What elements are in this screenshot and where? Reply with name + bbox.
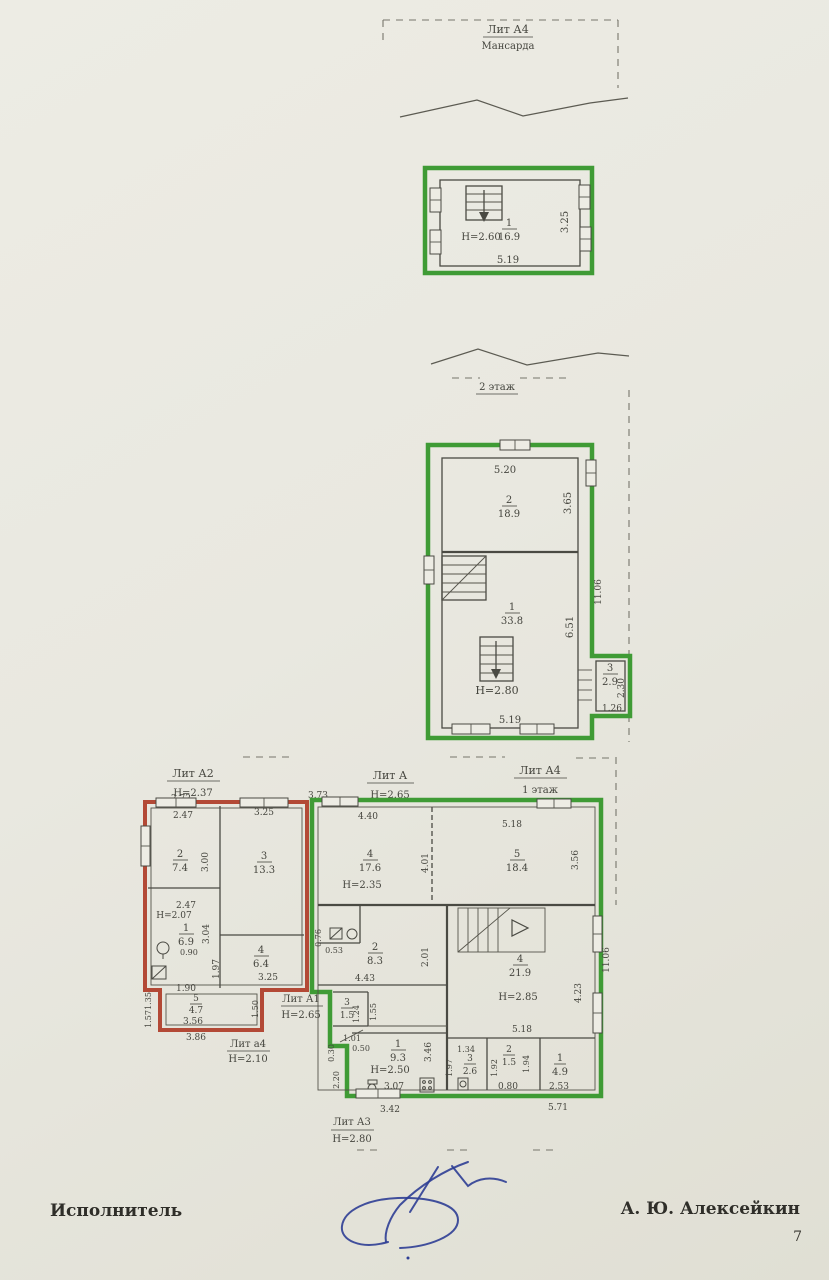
dim: 1.24 <box>352 1005 361 1023</box>
room-number: 1 <box>557 1053 563 1064</box>
room-label-2-6: 3 2.6 <box>463 1054 478 1077</box>
dim: 3.04 <box>202 924 212 944</box>
dim: 5.18 <box>502 820 522 830</box>
room-number: 4 <box>517 954 523 965</box>
page-number: 7 <box>793 1229 802 1245</box>
dim: 3.42 <box>380 1105 400 1115</box>
lit-a4-label: Лит А4 <box>519 764 560 777</box>
lit-a3-label-group: Лит А3 Н=2.80 <box>331 1117 374 1145</box>
ceiling-height: Н=2.80 <box>475 684 518 697</box>
dim: 5.18 <box>512 1025 532 1035</box>
dim: 3.07 <box>384 1082 404 1092</box>
dim: 1.90 <box>176 984 196 994</box>
lit-a4-small-label-group: Лит а4 Н=2.10 <box>227 1039 270 1065</box>
dim: 3.56 <box>183 1017 203 1027</box>
lit-a-label: Лит А <box>373 769 408 782</box>
floor-plan-drawing: Лит А4 Мансарда 1 16.9 Н=2.60 5.19 3.25 <box>0 0 829 1280</box>
dim-right-mid: 6.51 <box>565 616 576 638</box>
lit-a1-height: Н=2.65 <box>281 1010 320 1021</box>
ceiling-height: Н=2.85 <box>498 992 537 1003</box>
dim: 3.00 <box>201 852 211 872</box>
room-label-18-9: 2 18.9 <box>498 495 520 520</box>
dim-right-top: 3.65 <box>563 492 574 514</box>
dim: 1.35 <box>144 992 153 1010</box>
lit-a3-label: Лит А3 <box>333 1117 371 1128</box>
dim: 0.80 <box>498 1082 518 1092</box>
dim: 4.01 <box>421 853 431 873</box>
room-number: 5 <box>193 994 199 1004</box>
sink-icon <box>152 966 166 979</box>
room-area: 18.4 <box>506 863 528 874</box>
stairs-icon <box>466 186 502 222</box>
toilet2-icon <box>458 1078 468 1090</box>
dim: 4.23 <box>574 983 584 1003</box>
dim: 1.01 <box>343 1034 361 1043</box>
room-number: 4 <box>258 945 264 956</box>
dim: 1.55 <box>369 1003 378 1021</box>
dim: 5.71 <box>548 1103 568 1113</box>
winder-stairs-icon <box>458 908 545 952</box>
floor2-header: 2 этаж <box>476 382 518 394</box>
room-label-21-9: 4 21.9 <box>509 954 531 979</box>
stairs-up-icon <box>442 556 486 600</box>
dim-bottom: 5.19 <box>499 715 521 726</box>
dim-right: 3.25 <box>560 211 571 233</box>
room-area: 16.9 <box>498 232 520 243</box>
dim: 1.94 <box>522 1055 531 1073</box>
dim: 2.47 <box>173 811 193 821</box>
room-area: 17.6 <box>359 863 381 874</box>
executor-label: Исполнитель <box>50 1201 182 1221</box>
dim: 2.20 <box>332 1071 341 1089</box>
room-label-33-8: 1 33.8 <box>501 602 523 627</box>
room-area: 7.4 <box>172 863 188 874</box>
room-number: 2 <box>506 495 512 506</box>
dim-bottom: 5.19 <box>497 255 519 266</box>
floor1-green-section: 4.40 4 17.6 Н=2.35 4.01 5.18 5 18.4 3.56… <box>281 797 612 1145</box>
room-label-4-9: 1 4.9 <box>552 1053 568 1078</box>
stairs-down-icon <box>480 637 513 681</box>
room-number: 3 <box>261 851 267 862</box>
lit-a2-label: Лит А2 <box>172 767 213 780</box>
dim: 2.01 <box>421 947 431 967</box>
gas-heater-icon <box>157 942 169 959</box>
dim: 4.40 <box>358 812 378 822</box>
room-label-6-9: 1 6.9 <box>178 923 194 948</box>
room-number: 1 <box>183 923 189 934</box>
dim-annex-right: 2.30 <box>617 678 627 698</box>
dim: 3.25 <box>254 808 274 818</box>
room-number: 4 <box>367 849 373 860</box>
room-number: 3 <box>607 663 613 674</box>
dim: 1.97 <box>445 1059 454 1077</box>
room-area: 13.3 <box>253 865 275 876</box>
lit-a4-floor: 1 этаж <box>522 785 559 796</box>
room-area: 6.9 <box>178 937 194 948</box>
attic-room-label: 1 16.9 <box>498 218 520 243</box>
room-area: 1.5 <box>502 1058 517 1068</box>
dim: 3.25 <box>258 973 278 983</box>
room-number: 3 <box>467 1054 473 1064</box>
room-area: 8.3 <box>367 956 383 967</box>
dim: 0.50 <box>352 1044 370 1053</box>
room-number: 2 <box>372 942 378 953</box>
dim: 3.56 <box>571 850 581 870</box>
room-label-9-3: 1 9.3 <box>390 1039 406 1064</box>
room-label-7-4: 2 7.4 <box>172 849 188 874</box>
room-number: 2 <box>506 1045 512 1055</box>
dim: 0.76 <box>314 929 323 947</box>
dim-annex-bottom: 1.26 <box>602 704 622 714</box>
lit-a4-small-height: Н=2.10 <box>228 1054 267 1065</box>
signature <box>342 1162 506 1260</box>
floor2-label: 2 этаж <box>479 382 516 393</box>
room-area: 6.4 <box>253 959 269 970</box>
dim: 0.53 <box>325 946 343 955</box>
dim-overall: 11.06 <box>602 947 612 973</box>
dim: 2.47 <box>176 901 196 911</box>
room-area: 4.7 <box>189 1006 204 1016</box>
lit-a1-label: Лит А1 <box>282 994 320 1005</box>
dim: 3.46 <box>424 1042 434 1062</box>
room-label-6-4: 4 6.4 <box>253 945 269 970</box>
attic-lit-label: Лит А4 <box>487 23 528 36</box>
bath-sink-icons <box>330 928 357 939</box>
dim: 1.92 <box>490 1059 499 1077</box>
fixture-dim: 0.90 <box>180 948 198 957</box>
dim: 4.43 <box>355 974 375 984</box>
room-number: 1 <box>509 602 515 613</box>
room-label-18-4: 5 18.4 <box>506 849 528 874</box>
room-number: 5 <box>514 849 520 860</box>
room-number: 1 <box>506 218 512 229</box>
ceiling-height: Н=2.07 <box>156 911 192 921</box>
dim: 0.30 <box>327 1044 336 1062</box>
room-number: 2 <box>177 849 183 860</box>
room-number: 1 <box>395 1039 401 1050</box>
room-area: 2.6 <box>463 1067 478 1077</box>
floor1-red-section: 0.90 2.47 3.25 2 7.4 3.00 3 13.3 2.47 Н=… <box>141 798 307 1065</box>
dim-overall-right: 11.06 <box>594 579 604 605</box>
dim: 3.86 <box>186 1033 206 1043</box>
attic-header: Лит А4 Мансарда <box>482 23 535 52</box>
executor-name: А. Ю. Алексейкин <box>621 1199 800 1219</box>
floor2-plan: 2 этаж 5.20 2 <box>424 382 630 738</box>
room-area: 9.3 <box>390 1053 406 1064</box>
room-area: 18.9 <box>498 509 520 520</box>
room-label-1-5b: 2 1.5 <box>502 1045 517 1068</box>
room-number: 3 <box>344 998 350 1008</box>
attic-floor-label: Мансарда <box>482 41 535 52</box>
ceiling-height: Н=2.50 <box>370 1065 409 1076</box>
dim: 1.50 <box>251 1000 260 1018</box>
room-label-2-9: 3 2.9 <box>602 663 618 688</box>
room-area: 2.9 <box>602 677 618 688</box>
room-area: 4.9 <box>552 1067 568 1078</box>
room-label-4-7: 5 4.7 <box>189 994 204 1016</box>
lit-a4-small-label: Лит а4 <box>230 1039 266 1050</box>
dim: 1.57 <box>144 1010 153 1028</box>
room-area: 21.9 <box>509 968 531 979</box>
room-label-8-3: 2 8.3 <box>367 942 383 967</box>
dim-top: 5.20 <box>494 465 516 476</box>
lit-a3-height: Н=2.80 <box>332 1134 371 1145</box>
room-label-13-3: 3 13.3 <box>253 851 275 876</box>
room-area: 33.8 <box>501 616 523 627</box>
dim: 1.97 <box>212 959 222 979</box>
room-label-17-6: 4 17.6 <box>359 849 381 874</box>
attic-plan: Лит А4 Мансарда 1 16.9 Н=2.60 5.19 3.25 <box>425 23 592 273</box>
dim: 2.53 <box>549 1082 569 1092</box>
dim: 1.34 <box>457 1045 475 1054</box>
scanned-page: Лит А4 Мансарда 1 16.9 Н=2.60 5.19 3.25 <box>0 0 829 1280</box>
ceiling-height: Н=2.35 <box>342 880 381 891</box>
lit-a1-label-group: Лит А1 Н=2.65 <box>281 994 323 1021</box>
ceiling-height: Н=2.60 <box>461 232 500 243</box>
